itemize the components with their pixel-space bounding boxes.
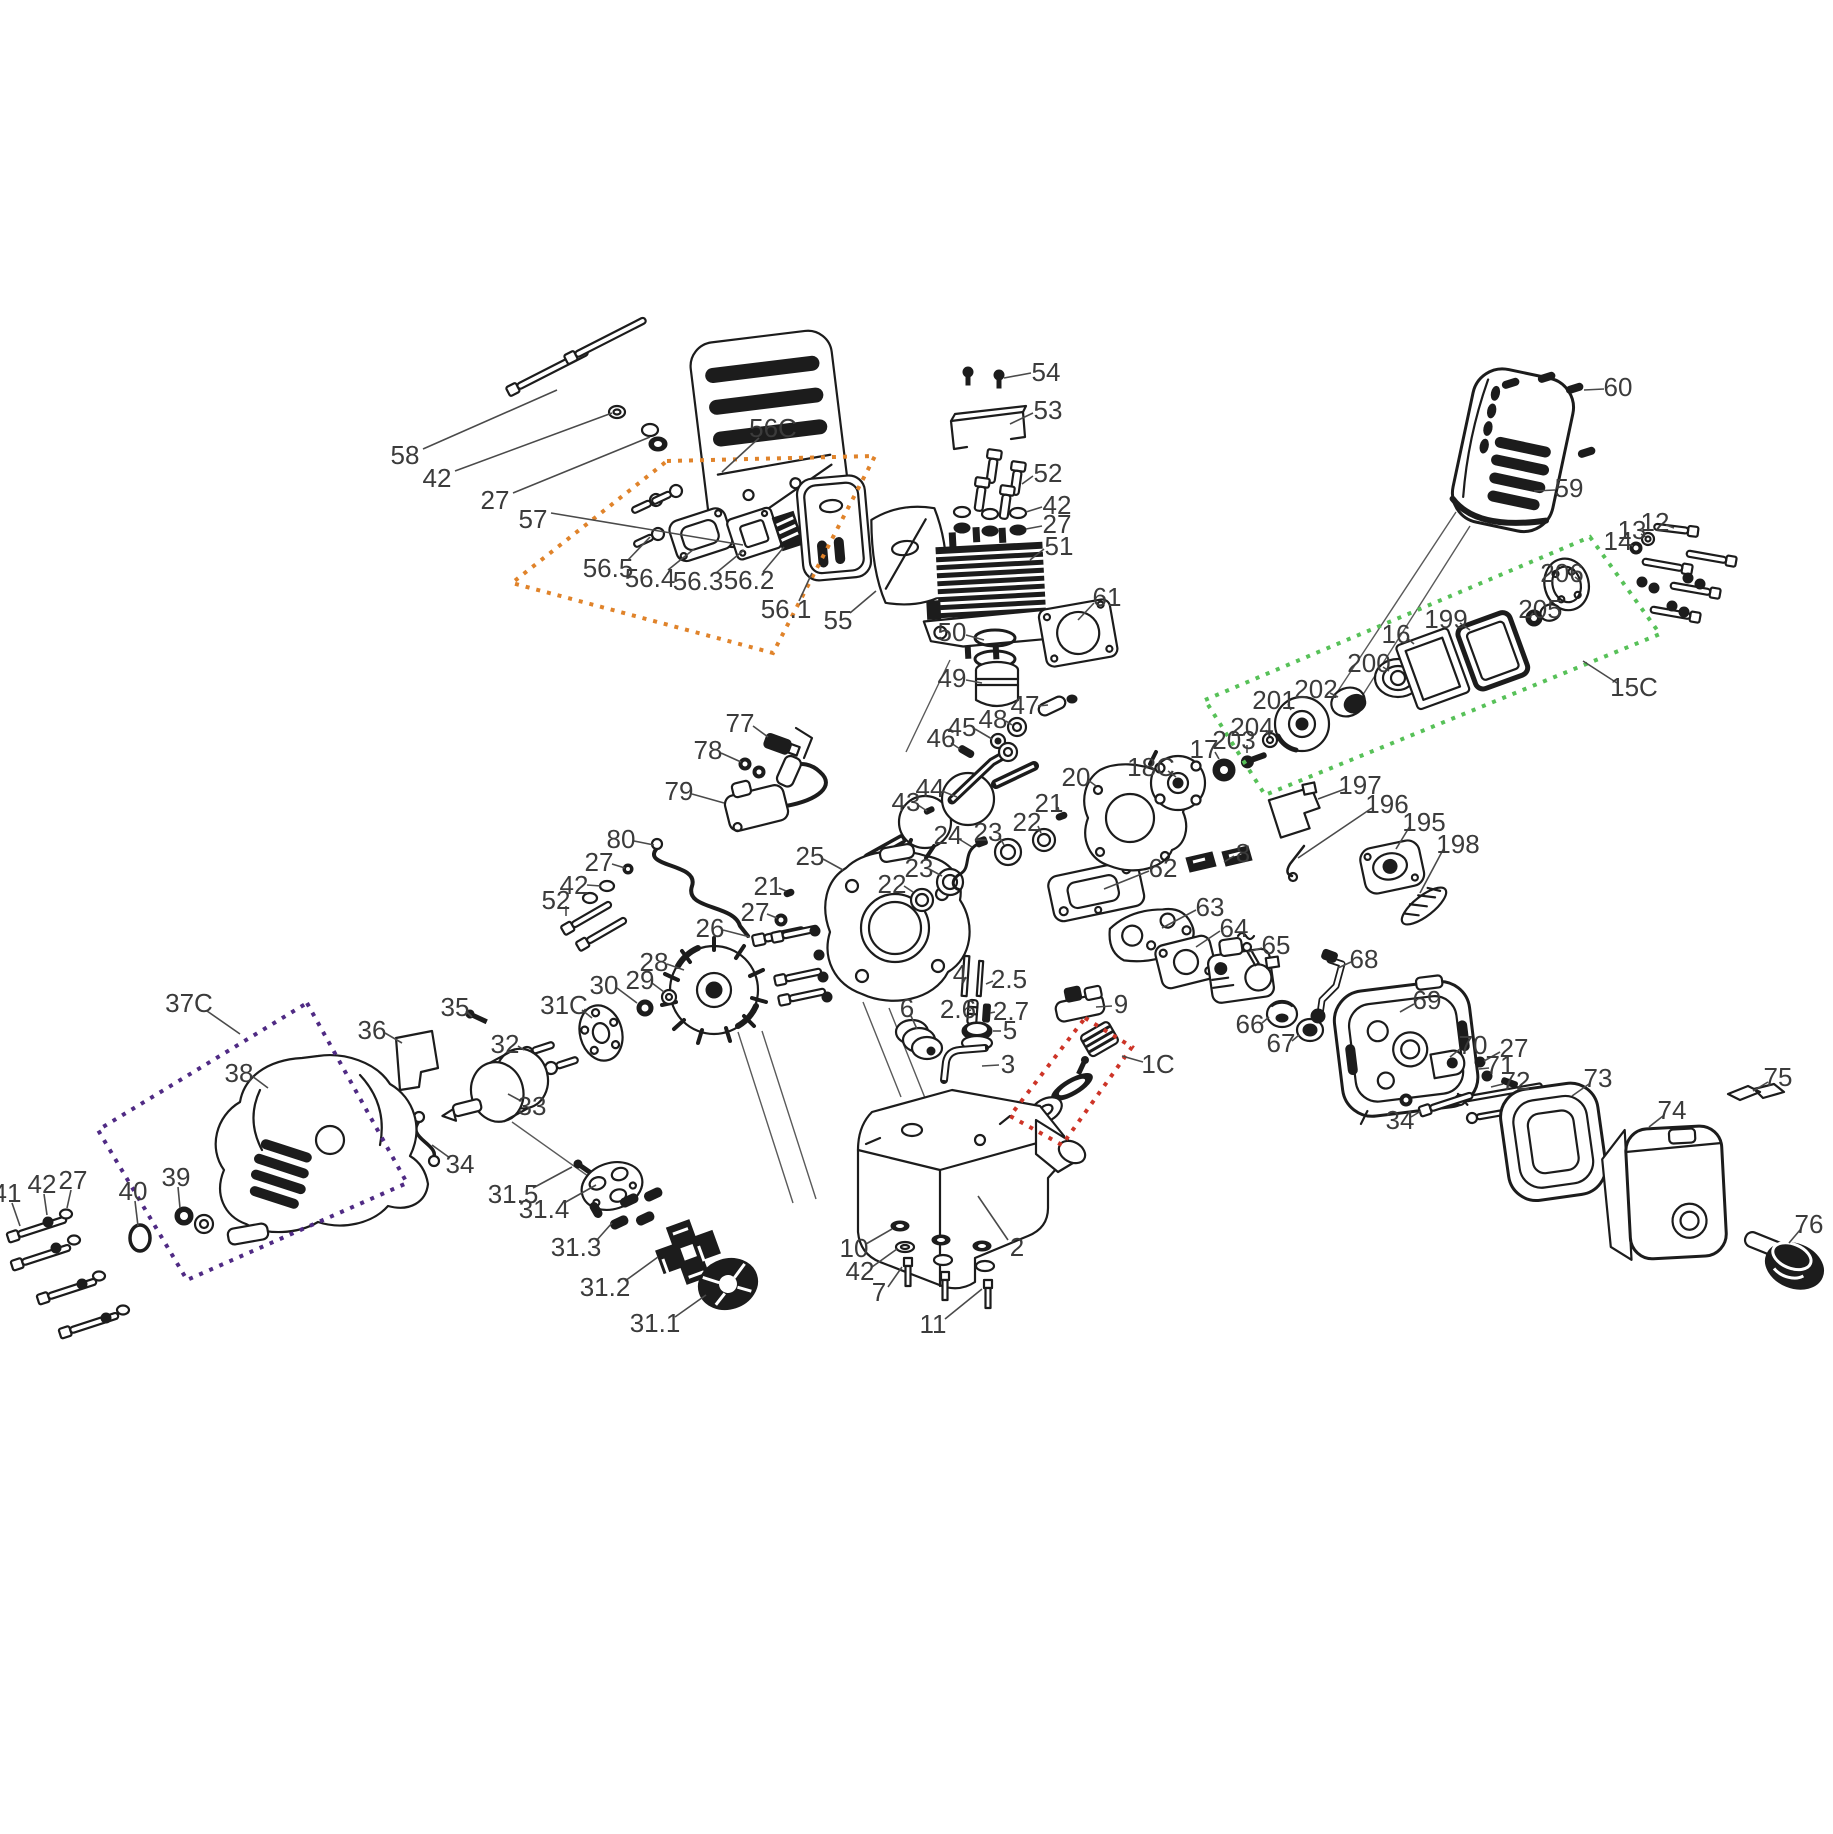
part-label-4: 4 — [953, 959, 967, 989]
part-label-31.3: 31.3 — [551, 1232, 602, 1262]
part-label-60: 60 — [1604, 372, 1633, 402]
part-label-42: 42 — [423, 463, 452, 493]
part-label-23: 23 — [905, 853, 934, 883]
part-label-6: 6 — [900, 993, 914, 1023]
part-label-48: 48 — [979, 704, 1008, 734]
part-label-57: 57 — [519, 504, 548, 534]
leader-47 — [1038, 705, 1048, 706]
part-label-73: 73 — [1584, 1063, 1613, 1093]
part-label-26: 26 — [696, 913, 725, 943]
leader-78 — [721, 753, 741, 762]
part-label-25: 25 — [796, 841, 825, 871]
part-label-202: 202 — [1294, 674, 1337, 704]
top-cover-group — [1447, 363, 1737, 623]
part-label-24: 24 — [934, 820, 963, 850]
crankcase-half-left — [825, 840, 969, 1001]
part-label-56.2: 56.2 — [724, 565, 775, 595]
part-label-204: 204 — [1230, 712, 1273, 742]
leader-196 — [1298, 808, 1372, 858]
part-label-65: 65 — [1262, 930, 1291, 960]
leader-25 — [823, 859, 843, 870]
leader-31.5 — [533, 1167, 572, 1188]
part-label-206: 206 — [1540, 558, 1583, 588]
part-label-201: 201 — [1252, 685, 1295, 715]
control-small-parts — [1267, 782, 1451, 930]
part-label-9: 9 — [1114, 989, 1128, 1019]
part-label-33: 33 — [518, 1091, 547, 1121]
part-label-52: 52 — [1034, 458, 1063, 488]
part-label-62: 62 — [1149, 853, 1178, 883]
part-label-54: 54 — [1032, 357, 1061, 387]
fuel-tank — [858, 1090, 1089, 1288]
part-label-7: 7 — [872, 1277, 886, 1307]
part-label-74: 74 — [1658, 1095, 1687, 1125]
part-label-53: 53 — [1034, 395, 1063, 425]
group-label-18C: 18C — [1127, 752, 1175, 782]
part-label-39: 39 — [162, 1162, 191, 1192]
leader-27 — [612, 864, 625, 868]
part-label-67: 67 — [1267, 1028, 1296, 1058]
part-label-69: 69 — [1413, 985, 1442, 1015]
part-label-2.6: 2.6 — [940, 994, 976, 1024]
part-label-29: 29 — [626, 965, 655, 995]
leader-79 — [692, 794, 724, 803]
group-label-15C: 15C — [1610, 672, 1658, 702]
part-label-64: 64 — [1220, 913, 1249, 943]
assembly-line — [512, 1122, 595, 1181]
leader-42 — [587, 885, 601, 886]
group-label-56C: 56C — [749, 413, 797, 443]
part-label-43: 43 — [892, 787, 921, 817]
exploded-parts-drawing — [6, 315, 1830, 1339]
part-label-49: 49 — [938, 663, 967, 693]
flywheel-group — [396, 938, 766, 1166]
part-label-78: 78 — [694, 735, 723, 765]
part-label-198: 198 — [1436, 829, 1479, 859]
air-filter-cover — [1601, 1125, 1728, 1261]
part-label-36: 36 — [358, 1015, 387, 1045]
part-label-35: 35 — [441, 992, 470, 1022]
part-label-205: 205 — [1518, 594, 1561, 624]
leader-54 — [1004, 373, 1031, 378]
part-label-56.4: 56.4 — [625, 563, 676, 593]
part-label-23: 23 — [974, 817, 1003, 847]
leader-52 — [1022, 476, 1033, 484]
part-label-31.4: 31.4 — [519, 1194, 570, 1224]
part-label-52: 52 — [542, 885, 571, 915]
part-label-77: 77 — [726, 708, 755, 738]
part-label-75: 75 — [1764, 1062, 1793, 1092]
part-label-14: 14 — [1604, 526, 1633, 556]
leader-77 — [753, 726, 768, 737]
part-label-27: 27 — [59, 1165, 88, 1195]
part-label-51: 51 — [1045, 531, 1074, 561]
part-label-68: 68 — [1350, 944, 1379, 974]
part-label-58: 58 — [391, 440, 420, 470]
part-label-16: 16 — [1382, 619, 1411, 649]
part-label-199: 199 — [1424, 604, 1467, 634]
part-label-21: 21 — [1035, 788, 1064, 818]
part-label-22: 22 — [878, 869, 907, 899]
part-label-79: 79 — [665, 776, 694, 806]
leader-27 — [1026, 526, 1042, 529]
part-label-59: 59 — [1555, 473, 1584, 503]
part-label-8: 8 — [1236, 838, 1250, 868]
muffler-cover-hardware — [506, 315, 667, 451]
part-label-66: 66 — [1236, 1009, 1265, 1039]
leader-59 — [1534, 490, 1555, 491]
part-label-3: 3 — [1001, 1049, 1015, 1079]
leader-7 — [888, 1267, 902, 1287]
part-label-72: 72 — [1502, 1066, 1531, 1096]
part-label-56.3: 56.3 — [673, 566, 724, 596]
leader-9 — [1096, 1006, 1112, 1007]
part-label-56.1: 56.1 — [761, 594, 812, 624]
part-label-42: 42 — [846, 1256, 875, 1286]
part-label-46: 46 — [927, 723, 956, 753]
leader-60 — [1584, 389, 1604, 390]
leader-53 — [1010, 413, 1033, 424]
part-label-50: 50 — [938, 617, 967, 647]
part-label-2: 2 — [1010, 1232, 1024, 1262]
part-label-61: 61 — [1093, 582, 1122, 612]
part-label-30: 30 — [590, 970, 619, 1000]
part-label-70: 70 — [1459, 1030, 1488, 1060]
part-label-76: 76 — [1795, 1209, 1824, 1239]
part-label-27: 27 — [481, 485, 510, 515]
bracket-53 — [951, 406, 1026, 449]
group-label-1C: 1C — [1141, 1049, 1174, 1079]
leader-27 — [513, 437, 650, 493]
part-label-41: 41 — [0, 1178, 21, 1208]
part-label-200: 200 — [1347, 648, 1390, 678]
part-label-34: 34 — [1386, 1105, 1415, 1135]
group-label-31C: 31C — [540, 990, 588, 1020]
leader-3 — [982, 1065, 999, 1066]
part-label-27: 27 — [585, 847, 614, 877]
leader-42 — [1026, 507, 1042, 512]
part-label-20: 20 — [1062, 762, 1091, 792]
part-label-31.2: 31.2 — [580, 1272, 631, 1302]
part-label-5: 5 — [1003, 1015, 1017, 1045]
part-label-47: 47 — [1011, 690, 1040, 720]
group-label-37C: 37C — [165, 988, 213, 1018]
part-label-42: 42 — [28, 1169, 57, 1199]
part-label-32: 32 — [491, 1029, 520, 1059]
leader-11 — [945, 1289, 982, 1319]
part-label-31.1: 31.1 — [630, 1308, 681, 1338]
part-label-38: 38 — [225, 1058, 254, 1088]
leader-55 — [850, 591, 876, 613]
part-label-27: 27 — [741, 897, 770, 927]
part-label-2.5: 2.5 — [991, 964, 1027, 994]
part-label-11: 11 — [920, 1309, 947, 1339]
part-label-34: 34 — [446, 1149, 475, 1179]
diagram-canvas: 56C15C37C1C18C31C5842275756.556.456.356.… — [0, 0, 1833, 1834]
assembly-line — [738, 1031, 816, 1203]
fuel-tank-group — [858, 956, 1119, 1308]
part-label-40: 40 — [119, 1176, 148, 1206]
part-label-55: 55 — [824, 605, 853, 635]
